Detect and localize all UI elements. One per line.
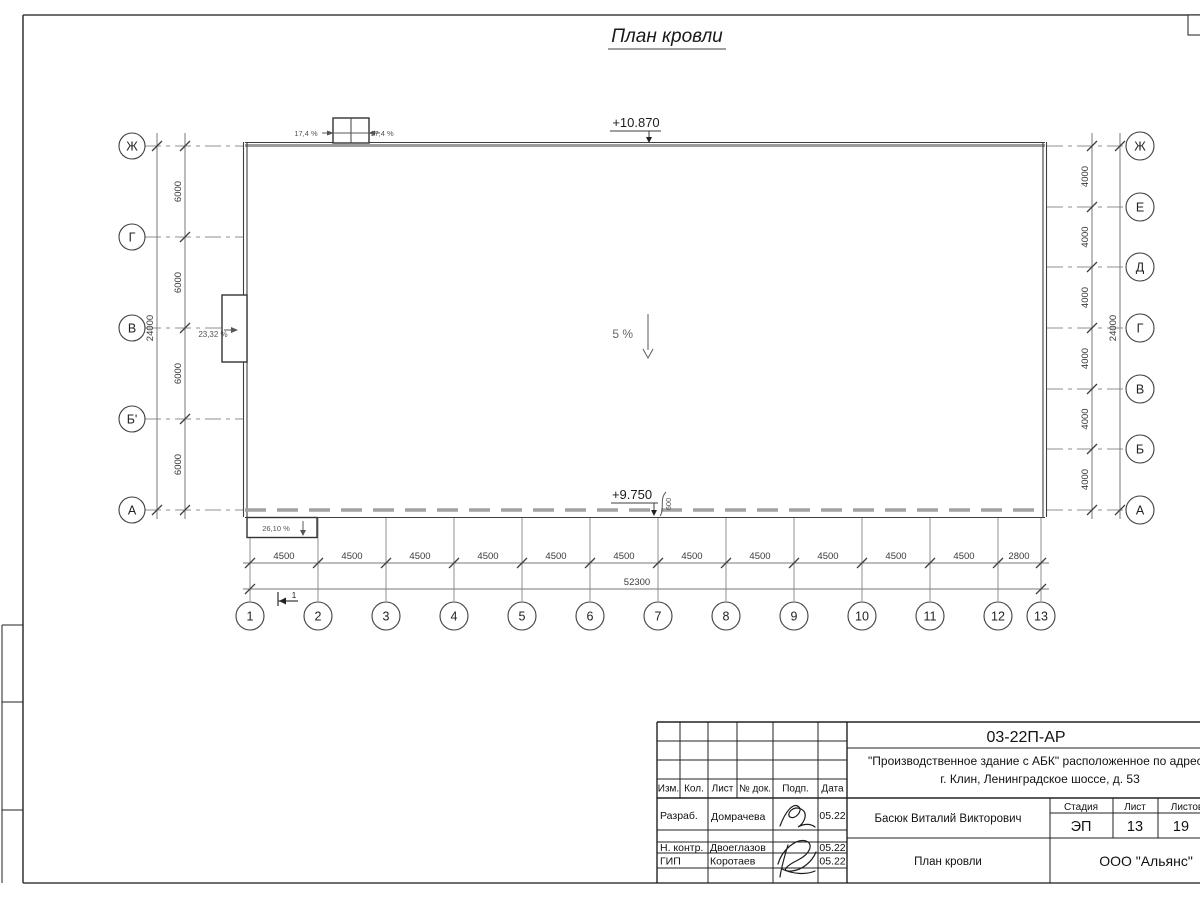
elevation-bottom-arrowhead	[651, 510, 657, 516]
dim-bottom-bay-4: 4500	[545, 551, 566, 562]
dim-bottom-bay-3: 4500	[477, 551, 498, 562]
axis-bubble-right-6-label: А	[1136, 504, 1145, 518]
role-1-name: Двоеглазов	[710, 842, 766, 854]
dim-left-bay-0: 6000	[173, 181, 184, 202]
rev-header-ndok: № док.	[739, 784, 771, 795]
dim-right-bay-5: 4000	[1080, 469, 1091, 490]
rev-header-kol: Кол.	[684, 784, 704, 795]
dim-bottom-bay-0: 4500	[273, 551, 294, 562]
axis-bubble-bottom-2-label: 3	[383, 610, 390, 624]
axis-bubble-bottom-11-label: 12	[991, 610, 1005, 624]
axis-bubble-left-2-label: В	[128, 322, 136, 336]
signature-2	[778, 841, 816, 877]
axis-bubble-bottom-7-label: 8	[723, 610, 730, 624]
bottom-slope-label: 26,10 %	[262, 524, 290, 533]
axis-bubble-bottom-10-label: 11	[924, 610, 937, 624]
dim-bottom-bay-2: 4500	[409, 551, 430, 562]
axis-bubble-left-4-label: А	[128, 504, 137, 518]
rev-header-podp: Подп.	[782, 784, 809, 795]
axis-bubbles-right: Ж Е Д Г В Б А	[1126, 132, 1154, 524]
axis-bubble-left-3-label: Б'	[127, 413, 138, 427]
dim-bottom-bay-1: 4500	[341, 551, 362, 562]
parapet-slope-right-label: 17,4 %	[370, 129, 394, 138]
role-1-label: Н. контр.	[660, 842, 703, 854]
dim-left-total: 24000	[145, 315, 156, 341]
project-line2: г. Клин, Ленинградское шоссе, д. 53	[940, 772, 1140, 786]
elevation-bottom-value: +9.750	[612, 487, 652, 502]
role-2-name: Коротаев	[710, 856, 756, 868]
dim-bottom-bay-5: 4500	[613, 551, 634, 562]
page-title: План кровли	[611, 26, 723, 47]
role-1-date: 05.22	[819, 842, 845, 854]
axis-bubble-right-0-label: Ж	[1134, 140, 1146, 154]
axis-bubbles-left: Ж Г В Б' А	[119, 133, 145, 523]
dim-right-bay-2: 4000	[1080, 287, 1091, 308]
rev-header-izm: Изм.	[658, 784, 679, 795]
dim-bottom-bay-10: 4500	[953, 551, 974, 562]
axis-bubble-right-1-label: Е	[1136, 201, 1144, 215]
project-line1: "Производственное здание с АБК" располож…	[868, 754, 1200, 768]
sheets-value: 19	[1173, 819, 1189, 835]
dim-bottom-bay-8: 4500	[817, 551, 838, 562]
axis-bubbles-bottom: 1 2 3 4 5 6 7 8 9 10 11 12 13	[236, 602, 1055, 630]
section-mark-number: 1	[292, 590, 297, 600]
overhang-dim-label: 600	[664, 498, 673, 511]
slope-center-label: 5 %	[612, 327, 633, 341]
axis-bubble-bottom-3-label: 4	[451, 610, 458, 624]
axis-bubble-right-2-label: Д	[1136, 261, 1145, 275]
axis-bubble-bottom-5-label: 6	[587, 610, 594, 624]
dim-right-total: 24000	[1108, 315, 1119, 341]
title-block: Изм. Кол. Лист № док. Подп. Дата 03-22П-…	[657, 722, 1200, 883]
role-2-label: ГИП	[660, 856, 681, 868]
axis-bubble-right-3-label: Г	[1137, 322, 1144, 336]
elevation-top-leader	[610, 131, 661, 138]
doc-number: 03-22П-АР	[986, 729, 1065, 746]
dim-right-bay-4: 4000	[1080, 408, 1091, 429]
elevation-mark-top: +10.870	[610, 115, 661, 143]
signature-1	[780, 806, 815, 827]
roof-right-wall	[1043, 142, 1047, 517]
left-slope-label: 23,32 %	[198, 330, 227, 339]
stage-value: ЭП	[1071, 819, 1092, 835]
axis-bubble-right-5-label: Б	[1136, 443, 1144, 457]
axis-bubble-left-0-label: Ж	[126, 140, 138, 154]
sheets-header: Листов	[1171, 802, 1200, 813]
slope-arrow-center: 5 %	[612, 314, 653, 358]
role-0-name: Домрачева	[711, 811, 766, 823]
dim-left-bay-1: 6000	[173, 272, 184, 293]
drawing-sheet: План кровли 17,4 % 17,4 % 23,32 % 26,10 …	[0, 0, 1200, 900]
left-margin-cells	[2, 625, 23, 883]
axis-bubble-bottom-9-label: 10	[855, 610, 869, 624]
parapet-slope-left-label: 17,4 %	[294, 129, 318, 138]
sheet-header: Лист	[1124, 802, 1146, 813]
dim-bottom-bay-9: 4500	[885, 551, 906, 562]
dim-right-bay-0: 4000	[1080, 166, 1091, 187]
axis-bubble-bottom-4-label: 5	[519, 610, 526, 624]
frame-corner-box	[1188, 15, 1200, 35]
dim-bottom-bay-7: 4500	[749, 551, 770, 562]
dim-bottom-total: 52300	[624, 577, 650, 588]
axis-bubble-bottom-1-label: 2	[315, 610, 322, 624]
approver-name: Басюк Виталий Викторович	[874, 813, 1021, 825]
section-mark: 1	[278, 590, 298, 606]
role-2-date: 05.22	[819, 856, 845, 868]
dim-left-bay-3: 6000	[173, 454, 184, 475]
axis-bubble-bottom-8-label: 9	[791, 610, 798, 624]
company-name: ООО "Альянс"	[1099, 853, 1193, 869]
stage-header: Стадия	[1064, 802, 1098, 813]
axis-bubble-right-4-label: В	[1136, 383, 1144, 397]
role-0-label: Разраб.	[660, 810, 698, 822]
dim-bottom-bay-11: 2800	[1008, 551, 1029, 562]
axis-bubble-bottom-0-label: 1	[247, 610, 254, 624]
slope-center-arrowhead	[643, 349, 653, 358]
column-grid-lines	[250, 517, 1041, 601]
sheet-value: 13	[1127, 819, 1143, 835]
role-0-date: 05.22	[819, 810, 845, 822]
axis-bubble-bottom-6-label: 7	[655, 610, 662, 624]
elevation-top-value: +10.870	[612, 115, 659, 130]
axis-bubble-left-1-label: Г	[129, 231, 136, 245]
dim-left-bay-2: 6000	[173, 363, 184, 384]
section-mark-arrowhead	[279, 598, 286, 605]
dim-bottom-bay-6: 4500	[681, 551, 702, 562]
drawing-title: План кровли	[914, 856, 982, 868]
rev-header-data: Дата	[821, 784, 844, 795]
dim-right-bay-1: 4000	[1080, 226, 1091, 247]
axis-bubble-bottom-12-label: 13	[1034, 610, 1048, 624]
roof-plan-drawing: План кровли 17,4 % 17,4 % 23,32 % 26,10 …	[0, 0, 1200, 900]
rev-header-list: Лист	[712, 784, 734, 795]
dim-right-bay-3: 4000	[1080, 348, 1091, 369]
